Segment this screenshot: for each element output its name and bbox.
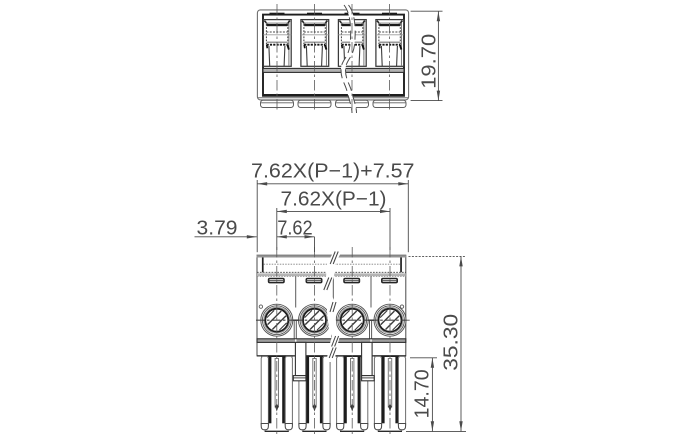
svg-text:14.70: 14.70: [412, 369, 434, 418]
svg-text:3.79: 3.79: [197, 218, 238, 240]
svg-text:7.62X(P−1)+7.57: 7.62X(P−1)+7.57: [251, 161, 415, 183]
svg-text:7.62X(P−1): 7.62X(P−1): [281, 188, 387, 210]
svg-text:19.70: 19.70: [419, 34, 441, 89]
svg-text:35.30: 35.30: [440, 314, 462, 371]
